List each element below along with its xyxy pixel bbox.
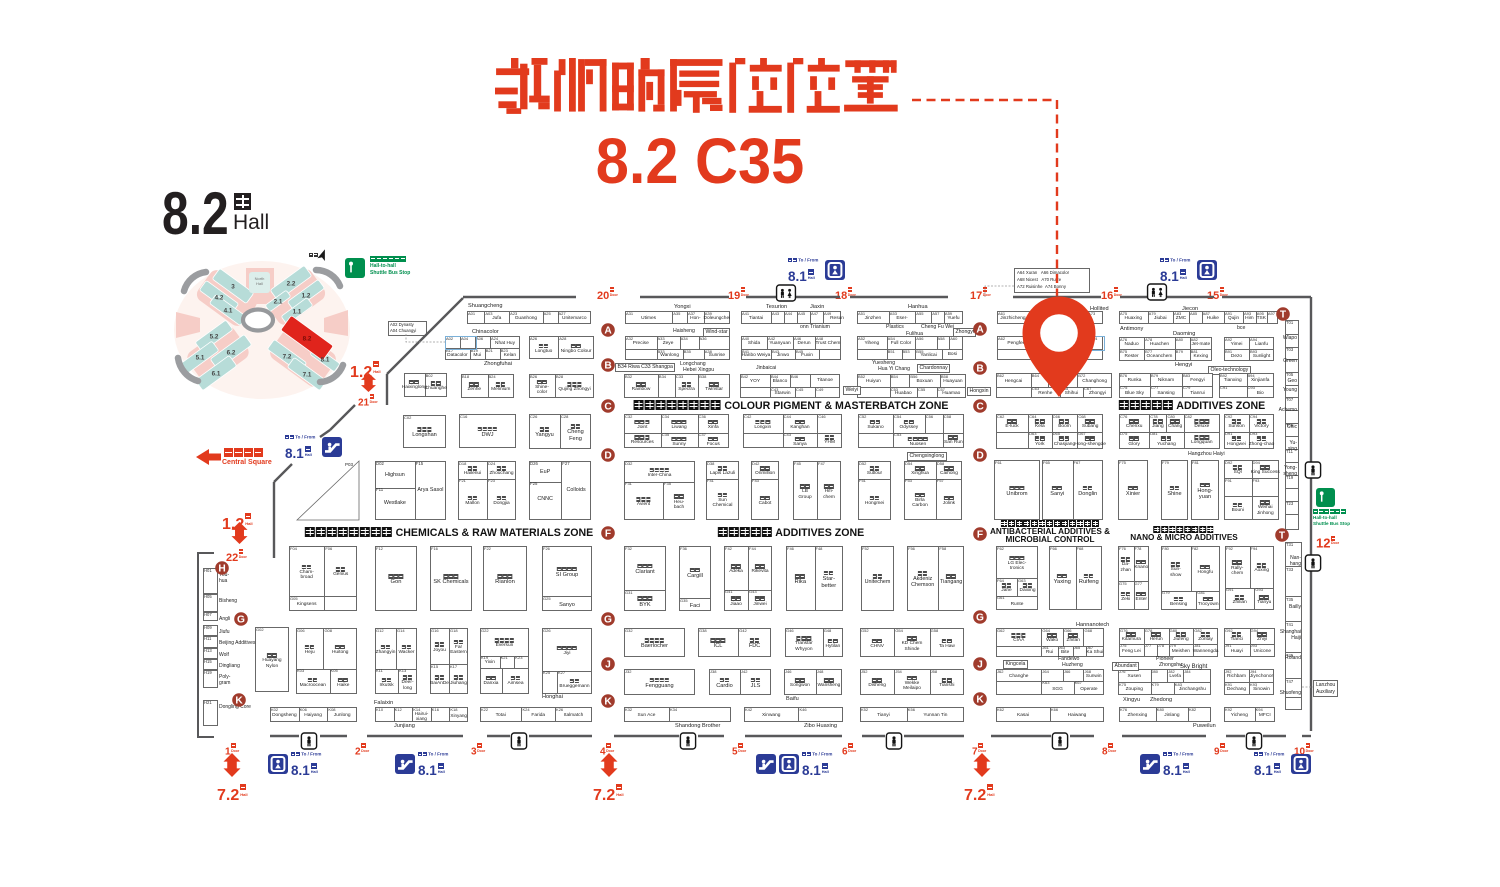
svg-text:5.2: 5.2 [210, 333, 219, 340]
svg-text:6.1: 6.1 [212, 370, 221, 377]
svg-text:1.1: 1.1 [293, 308, 302, 315]
svg-text:7.1: 7.1 [303, 371, 312, 378]
svg-text:Hall: Hall [256, 281, 263, 286]
svg-text:2.1: 2.1 [274, 298, 283, 305]
svg-text:6.2: 6.2 [227, 349, 236, 356]
svg-text:4.2: 4.2 [215, 294, 224, 301]
svg-text:3: 3 [231, 283, 235, 290]
svg-text:7.2: 7.2 [283, 353, 292, 360]
svg-text:4.1: 4.1 [224, 307, 233, 314]
svg-text:8.1: 8.1 [321, 356, 330, 363]
svg-text:5.1: 5.1 [196, 354, 205, 361]
svg-text:2.2: 2.2 [287, 280, 296, 287]
svg-text:1.2: 1.2 [302, 292, 311, 299]
svg-text:8.2: 8.2 [303, 335, 312, 342]
